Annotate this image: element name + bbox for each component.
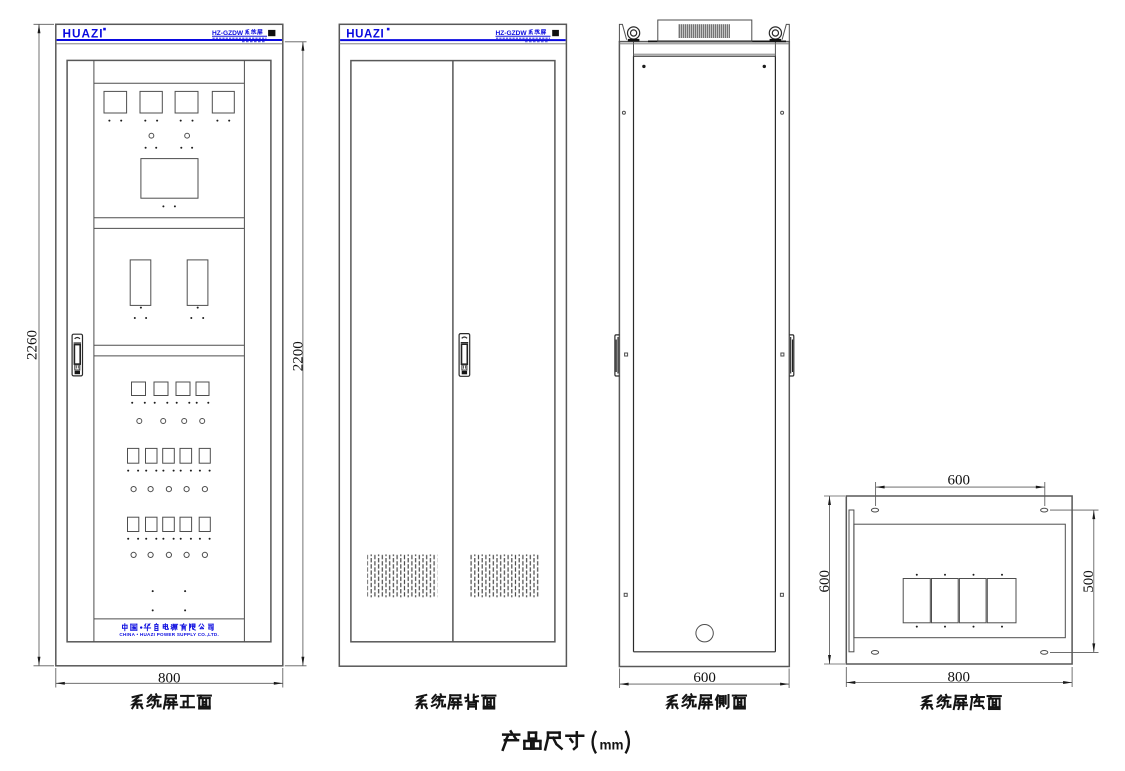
svg-text:HZ-GZDW: HZ-GZDW	[496, 30, 528, 37]
svg-text:600: 600	[817, 570, 833, 593]
svg-text:500: 500	[1081, 570, 1097, 593]
svg-text:600: 600	[948, 473, 971, 489]
svg-text:2260: 2260	[25, 330, 41, 360]
svg-text:CHINA • HUAZI POWER SUPPLY CO.: CHINA • HUAZI POWER SUPPLY CO.,LTD.	[119, 632, 219, 637]
svg-text:HUAZI: HUAZI	[63, 27, 104, 41]
svg-text:800: 800	[948, 670, 971, 686]
svg-text:2200: 2200	[290, 341, 306, 371]
svg-text:600: 600	[693, 670, 716, 686]
svg-text:mm: mm	[600, 738, 624, 753]
svg-text:HUAZI: HUAZI	[346, 29, 384, 41]
svg-text:800: 800	[158, 671, 181, 687]
svg-text:HZ-GZDW: HZ-GZDW	[212, 30, 244, 37]
